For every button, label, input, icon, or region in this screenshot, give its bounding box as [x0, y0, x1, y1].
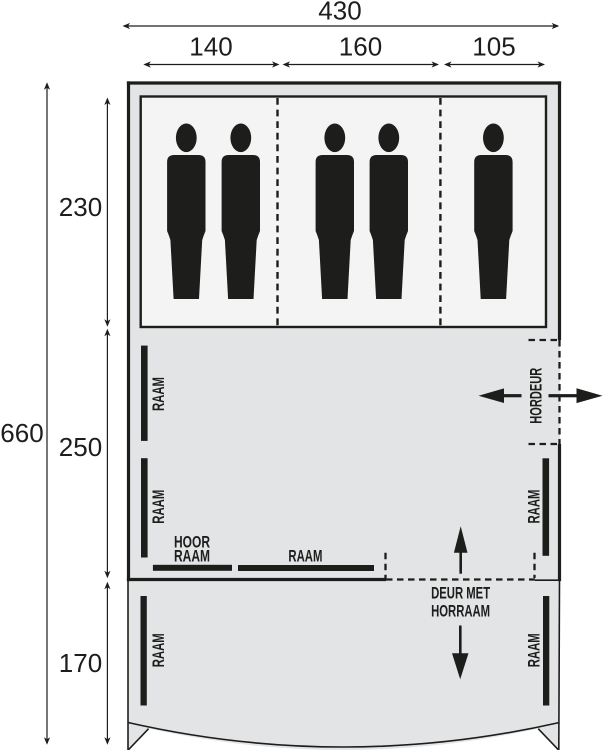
- svg-text:RAAM: RAAM: [150, 377, 168, 411]
- svg-text:HORRAAM: HORRAAM: [431, 603, 490, 621]
- svg-text:140: 140: [189, 32, 232, 62]
- svg-text:HORDEUR: HORDEUR: [527, 368, 545, 424]
- svg-text:DEUR MET: DEUR MET: [431, 585, 490, 603]
- svg-text:RAAM: RAAM: [150, 490, 168, 524]
- svg-text:250: 250: [59, 432, 102, 462]
- svg-text:RAAM: RAAM: [288, 548, 322, 566]
- svg-text:230: 230: [59, 192, 102, 222]
- svg-text:160: 160: [339, 32, 382, 62]
- svg-text:RAAM: RAAM: [174, 548, 210, 566]
- svg-text:RAAM: RAAM: [526, 633, 544, 667]
- svg-text:RAAM: RAAM: [526, 490, 544, 524]
- svg-text:105: 105: [472, 32, 515, 62]
- svg-text:660: 660: [0, 418, 43, 448]
- svg-text:430: 430: [318, 0, 361, 26]
- svg-text:170: 170: [59, 648, 102, 678]
- svg-text:RAAM: RAAM: [150, 633, 168, 667]
